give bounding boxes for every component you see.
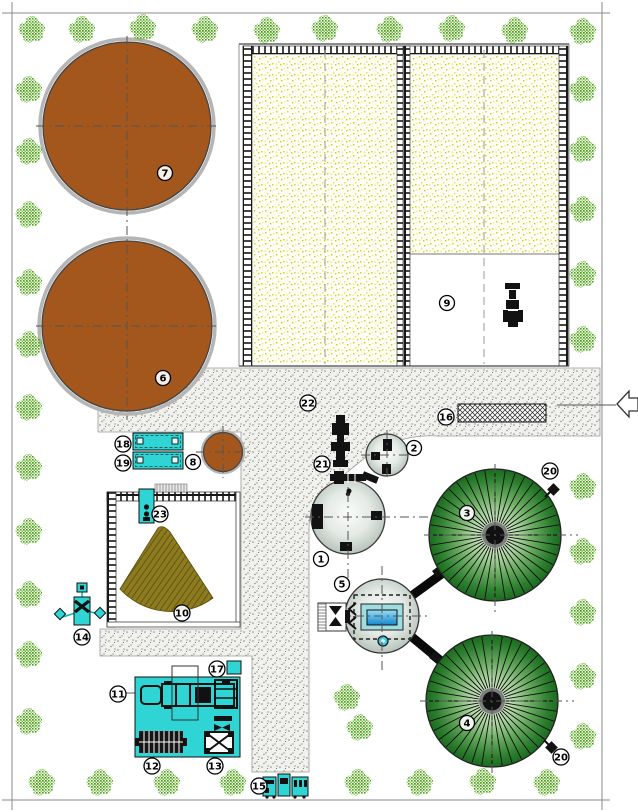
- marker-19: 19: [115, 455, 131, 471]
- tree-icon: [69, 16, 96, 43]
- marker-17: 17: [209, 661, 225, 677]
- tree-icon: [377, 16, 404, 43]
- tree-icon: [154, 769, 181, 796]
- svg-text:7: 7: [162, 169, 169, 180]
- tree-icon: [570, 76, 597, 103]
- svg-text:20: 20: [543, 467, 557, 478]
- tree-icon: [570, 663, 597, 690]
- cabinet-17: [227, 661, 241, 674]
- container-18: [133, 433, 183, 450]
- svg-text:5: 5: [339, 580, 346, 591]
- svg-text:23: 23: [153, 510, 167, 521]
- silage-store-10: [107, 484, 240, 627]
- tree-icon: [570, 136, 597, 163]
- tree-icon: [570, 18, 597, 45]
- tree-icon: [16, 708, 43, 735]
- conveyor-23: [139, 489, 154, 523]
- barn-wall-middle: [397, 46, 403, 366]
- transfer-pump: [318, 603, 350, 631]
- pump-house-5: [336, 566, 430, 670]
- marker-13: 13: [207, 758, 223, 774]
- svg-text:2: 2: [411, 444, 418, 455]
- marker-10: 10: [174, 605, 190, 621]
- tree-icon: [439, 15, 466, 42]
- marker-5: 5: [335, 577, 350, 592]
- marker-8: 8: [186, 455, 201, 470]
- svg-text:20: 20: [554, 753, 568, 764]
- marker-20b: 20: [553, 749, 569, 765]
- svg-text:15: 15: [252, 782, 266, 793]
- tree-icon: [407, 769, 434, 796]
- tree-icon: [16, 76, 43, 103]
- svg-text:1: 1: [318, 555, 325, 566]
- tree-icon: [220, 769, 247, 796]
- barn-wall-right: [559, 46, 568, 366]
- tree-icon: [192, 16, 219, 43]
- svg-text:21: 21: [315, 460, 329, 471]
- svg-text:14: 14: [75, 633, 89, 644]
- marker-18: 18: [115, 436, 131, 452]
- marker-1: 1: [314, 552, 329, 567]
- tree-icon: [570, 473, 597, 500]
- svg-text:16: 16: [439, 413, 453, 424]
- tree-icon: [347, 714, 374, 741]
- marker-2: 2: [407, 441, 422, 456]
- entrance-arrow-icon: [617, 391, 638, 417]
- marker-3: 3: [460, 506, 475, 521]
- marker-7: 7: [158, 166, 173, 181]
- tree-icon: [534, 769, 561, 796]
- marker-6: 6: [156, 371, 171, 386]
- site-plan-drawing: 1 2 3 4 5 6 7 8 9 10 11 12 13 14 15 16 1…: [0, 0, 638, 812]
- tree-icon: [312, 15, 339, 42]
- tree-icon: [16, 138, 43, 165]
- svg-text:18: 18: [116, 440, 130, 451]
- svg-text:19: 19: [116, 459, 130, 470]
- container-19: [133, 452, 183, 469]
- svg-text:6: 6: [160, 374, 167, 385]
- marker-21: 21: [314, 456, 330, 472]
- tree-icon: [19, 16, 46, 43]
- barn-wall-left: [243, 46, 252, 366]
- tree-icon: [16, 394, 43, 421]
- tree-icon: [16, 201, 43, 228]
- tree-icon: [16, 454, 43, 481]
- marker-20a: 20: [542, 463, 558, 479]
- digester-4: [420, 631, 574, 778]
- marker-14: 14: [74, 629, 90, 645]
- svg-text:12: 12: [145, 762, 159, 773]
- tree-icon: [334, 684, 361, 711]
- tree-icon: [254, 17, 281, 44]
- svg-text:22: 22: [301, 399, 315, 410]
- marker-11: 11: [110, 686, 126, 702]
- tree-icon: [29, 769, 56, 796]
- marker-4: 4: [460, 716, 475, 731]
- tree-icon: [570, 599, 597, 626]
- svg-text:9: 9: [444, 299, 451, 310]
- ramp: [155, 484, 187, 492]
- tree-icon: [502, 17, 529, 44]
- tree-icon: [570, 538, 597, 565]
- tree-icon: [570, 261, 597, 288]
- tree-icon: [130, 14, 157, 41]
- marker-15: 15: [251, 778, 267, 794]
- tree-icon: [87, 769, 114, 796]
- svg-text:17: 17: [210, 665, 224, 676]
- tree-icon: [16, 518, 43, 545]
- tree-icon: [345, 769, 372, 796]
- marker-9: 9: [440, 296, 455, 311]
- marker-22: 22: [300, 395, 316, 411]
- svg-text:13: 13: [208, 762, 222, 773]
- marker-16: 16: [438, 409, 454, 425]
- tree-icon: [570, 723, 597, 750]
- tree-icon: [570, 196, 597, 223]
- flare-icon: [545, 483, 560, 497]
- marker-23: 23: [152, 506, 168, 522]
- svg-text:10: 10: [175, 609, 189, 620]
- svg-text:11: 11: [111, 690, 125, 701]
- pump-unit-14: [54, 583, 105, 625]
- pipe-to-digester-3: [410, 573, 443, 597]
- tree-icon: [16, 269, 43, 296]
- svg-text:8: 8: [190, 458, 197, 469]
- tree-icon: [570, 326, 597, 353]
- svg-text:4: 4: [464, 719, 471, 730]
- tree-icon: [16, 641, 43, 668]
- tree-icon: [16, 581, 43, 608]
- container-group-15: [263, 774, 308, 799]
- svg-text:3: 3: [464, 509, 471, 520]
- site-plan-canvas: 1 2 3 4 5 6 7 8 9 10 11 12 13 14 15 16 1…: [0, 0, 638, 812]
- cattle-grid-16: [458, 404, 546, 422]
- weighbridge-13: [205, 732, 233, 753]
- marker-12: 12: [144, 758, 160, 774]
- grate-12: [135, 731, 187, 753]
- barn-buildings: [239, 44, 569, 366]
